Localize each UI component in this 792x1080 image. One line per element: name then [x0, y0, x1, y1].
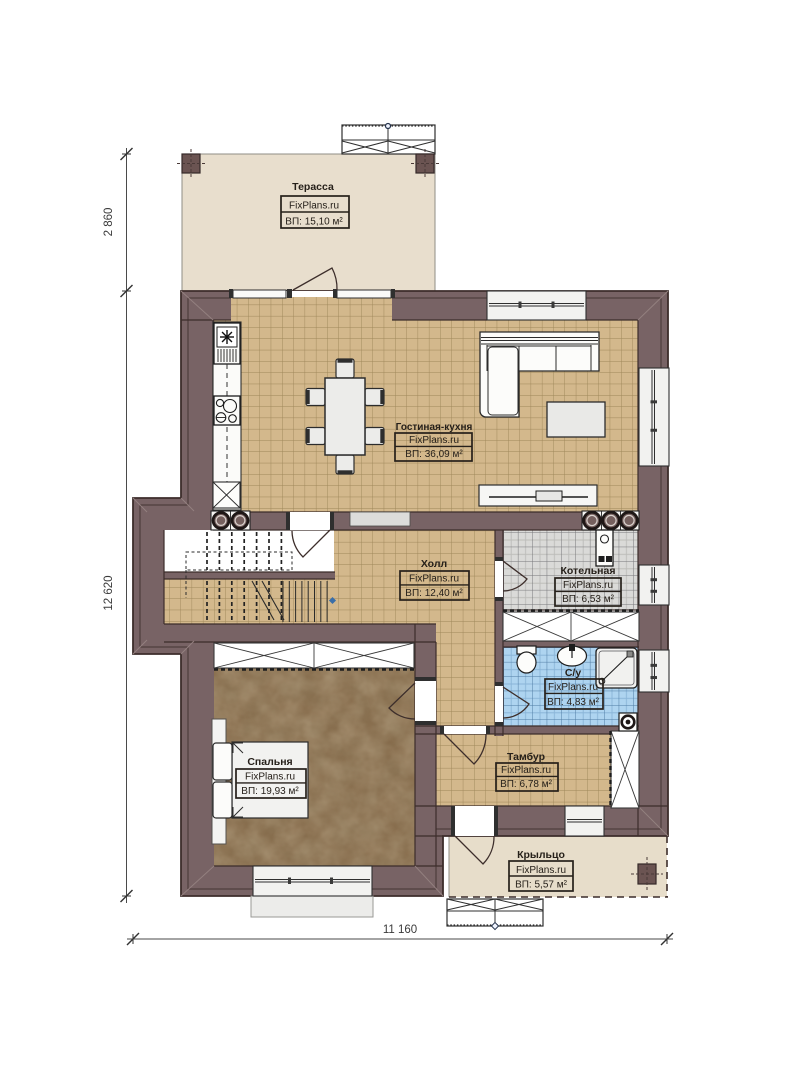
- svg-text:Крыльцо: Крыльцо: [517, 849, 565, 861]
- svg-text:FixPlans.ru: FixPlans.ru: [409, 435, 459, 446]
- svg-text:FixPlans.ru: FixPlans.ru: [245, 771, 295, 782]
- svg-text:ВП: 19,93 м²: ВП: 19,93 м²: [241, 786, 299, 797]
- svg-text:11 160: 11 160: [383, 924, 417, 936]
- svg-text:Гостиная-кухня: Гостиная-кухня: [396, 422, 473, 433]
- svg-text:FixPlans.ru: FixPlans.ru: [501, 765, 551, 776]
- svg-text:FixPlans.ru: FixPlans.ru: [289, 201, 339, 212]
- svg-text:С/у: С/у: [565, 667, 582, 679]
- svg-text:ВП: 12,40 м²: ВП: 12,40 м²: [405, 588, 463, 599]
- svg-text:ВП: 5,57 м²: ВП: 5,57 м²: [515, 880, 568, 891]
- svg-text:FixPlans.ru: FixPlans.ru: [548, 682, 598, 693]
- svg-text:Котельная: Котельная: [561, 565, 616, 577]
- svg-text:FixPlans.ru: FixPlans.ru: [563, 580, 613, 591]
- svg-text:FixPlans.ru: FixPlans.ru: [409, 573, 459, 584]
- svg-text:ВП: 4,83 м²: ВП: 4,83 м²: [547, 697, 600, 708]
- svg-text:Терасса: Терасса: [292, 181, 334, 193]
- svg-text:ВП: 15,10 м²: ВП: 15,10 м²: [285, 217, 343, 228]
- svg-text:ВП: 36,09 м²: ВП: 36,09 м²: [405, 449, 463, 460]
- svg-text:2 860: 2 860: [103, 208, 115, 237]
- svg-text:ВП: 6,53 м²: ВП: 6,53 м²: [562, 594, 615, 605]
- svg-text:Холл: Холл: [421, 558, 447, 570]
- svg-text:FixPlans.ru: FixPlans.ru: [516, 865, 566, 876]
- svg-text:Спальня: Спальня: [247, 756, 292, 768]
- svg-text:12 620: 12 620: [103, 575, 115, 610]
- svg-text:ВП: 6,78 м²: ВП: 6,78 м²: [500, 779, 553, 790]
- svg-text:Тамбур: Тамбур: [507, 751, 545, 763]
